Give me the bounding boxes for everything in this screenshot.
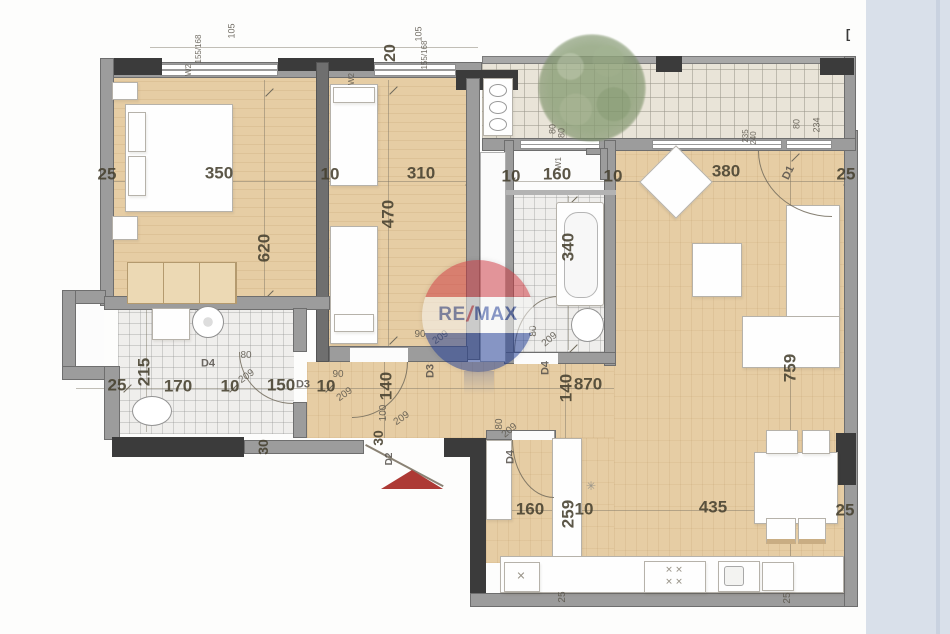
door-label: D4 <box>201 359 215 370</box>
coffee-table <box>692 243 742 297</box>
dimension-label: 100 <box>379 405 389 422</box>
symbol-icon: ✳ <box>586 480 596 492</box>
chair <box>766 518 796 544</box>
symbol-icon: ✕ ✕ <box>665 566 683 575</box>
chair <box>766 430 798 454</box>
window-bedroom-2 <box>374 64 456 76</box>
dimension-label: 435 <box>699 499 727 516</box>
dimension-label: 234 <box>813 117 822 132</box>
pillow <box>334 314 374 332</box>
dimension-line <box>264 80 265 298</box>
wall-wc-right-b <box>293 402 307 438</box>
dimension-label: 80 <box>558 128 567 138</box>
dimension-label: 30 <box>371 430 385 446</box>
planter-pot <box>489 101 507 114</box>
dimension-label: 80 <box>240 351 251 361</box>
window-bedroom-1 <box>160 64 278 76</box>
wall-wc-right-a <box>293 308 307 352</box>
dimension-label: 25 <box>837 166 856 183</box>
dimension-label: 25 <box>783 592 793 603</box>
balloon-tail <box>464 371 494 395</box>
watermark-max: MAX <box>474 304 518 326</box>
nightstand <box>112 216 138 240</box>
dimension-label: 80 <box>793 119 802 129</box>
dimension-label: 10 <box>604 168 623 185</box>
dimension-label: 105 <box>415 26 424 41</box>
dimension-label: 25 <box>836 502 855 519</box>
dimension-label: 470 <box>380 200 397 228</box>
watermark-slash: / <box>467 303 473 327</box>
balloon-white-band: RE/MAX <box>422 297 534 333</box>
dimension-label: 160 <box>516 501 544 518</box>
dimension-label: 170 <box>164 378 192 395</box>
dimension-label: [ <box>846 28 850 41</box>
dimension-label: 140 <box>558 374 575 402</box>
dimension-label: 140 <box>378 372 395 400</box>
remax-balloon-icon: RE/MAX <box>422 260 534 372</box>
dimension-label: 25 <box>98 166 117 183</box>
planter-pot <box>489 118 507 131</box>
door-gap-hall <box>512 431 554 440</box>
wall-bottom-dark-left <box>112 437 244 457</box>
dimension-label: 310 <box>407 165 435 182</box>
door-label: D2 <box>385 453 395 466</box>
chair <box>798 518 826 544</box>
door-label: D4 <box>506 450 517 464</box>
wall-kitchen-bottom <box>470 593 858 607</box>
dimension-label: 10 <box>575 501 594 518</box>
dimension-label: 10 <box>321 166 340 183</box>
pillow <box>333 87 375 103</box>
dimension-label: 25 <box>558 591 568 602</box>
dimension-label: 350 <box>205 165 233 182</box>
dimension-label: 90 <box>332 370 343 380</box>
pillow <box>128 156 146 196</box>
planter-pot <box>489 84 507 97</box>
dimension-label: 870 <box>574 376 602 393</box>
dimension-label: W1 <box>555 157 563 169</box>
kitchen-sink-basin <box>724 566 744 586</box>
nightstand <box>112 82 138 100</box>
window-living-1 <box>652 140 782 149</box>
dimension-label: 759 <box>782 354 799 382</box>
dimension-label: 150 <box>267 377 295 394</box>
door-label: D4 <box>541 361 552 375</box>
dimension-label: 380 <box>712 163 740 180</box>
balloon-red-band <box>422 260 534 297</box>
sofa-a <box>786 205 840 318</box>
dimension-label: 25 <box>108 377 127 394</box>
watermark-re: RE <box>438 304 465 326</box>
pillow <box>128 112 146 152</box>
dimension-label: 155/168 <box>195 35 203 64</box>
dimension-label: W2 <box>348 73 356 85</box>
floor-wc-niche <box>78 304 104 368</box>
dimension-label: 30 <box>256 439 270 455</box>
remax-watermark: RE/MAX <box>422 260 534 400</box>
floor-plan-canvas: 3501031010160103802525620470340215251701… <box>0 0 950 634</box>
chair <box>802 430 830 454</box>
wall-top-dark-a <box>112 58 162 75</box>
washing-machine <box>192 306 224 338</box>
dimension-label: 155/168 <box>421 41 429 70</box>
wall-terrace-dark-right <box>820 58 854 75</box>
wc-toilet <box>132 396 172 426</box>
dimension-label: 340 <box>560 233 577 261</box>
wall-terrace-dark-mid <box>656 56 682 72</box>
dimension-label: 10 <box>502 168 521 185</box>
floor-terrace <box>482 64 844 140</box>
wall-right-dark <box>836 433 856 485</box>
wardrobe <box>127 262 237 304</box>
entrance-arrow-icon <box>381 470 443 489</box>
background-band-edge <box>936 0 940 634</box>
dimension-label: 620 <box>256 234 273 262</box>
dimension-label: 240 <box>750 131 758 144</box>
wall-bathroom-divider <box>504 190 616 195</box>
wall-kitchen-left-dark <box>470 438 486 607</box>
door-gap-bed2 <box>350 348 408 362</box>
window-living-2 <box>786 140 832 149</box>
symbol-icon: ✕ ✕ <box>665 578 683 587</box>
dimension-label: 20 <box>383 44 399 62</box>
dimension-label: 105 <box>228 23 237 38</box>
wc-sink <box>152 308 190 340</box>
door-label: D3 <box>296 380 310 391</box>
kitchen-unit <box>762 562 794 591</box>
dimension-label: 10 <box>221 378 240 395</box>
dimension-label: 10 <box>317 378 336 395</box>
symbol-icon: ✕ <box>516 572 525 583</box>
bath-toilet <box>571 308 604 342</box>
wall-right <box>844 130 858 607</box>
dining-table <box>754 452 838 524</box>
dimension-label: 215 <box>136 358 153 386</box>
balloon-blue-band <box>422 333 534 372</box>
dimension-label: W2 <box>185 64 193 76</box>
wall-bed1-bed2 <box>316 62 329 362</box>
